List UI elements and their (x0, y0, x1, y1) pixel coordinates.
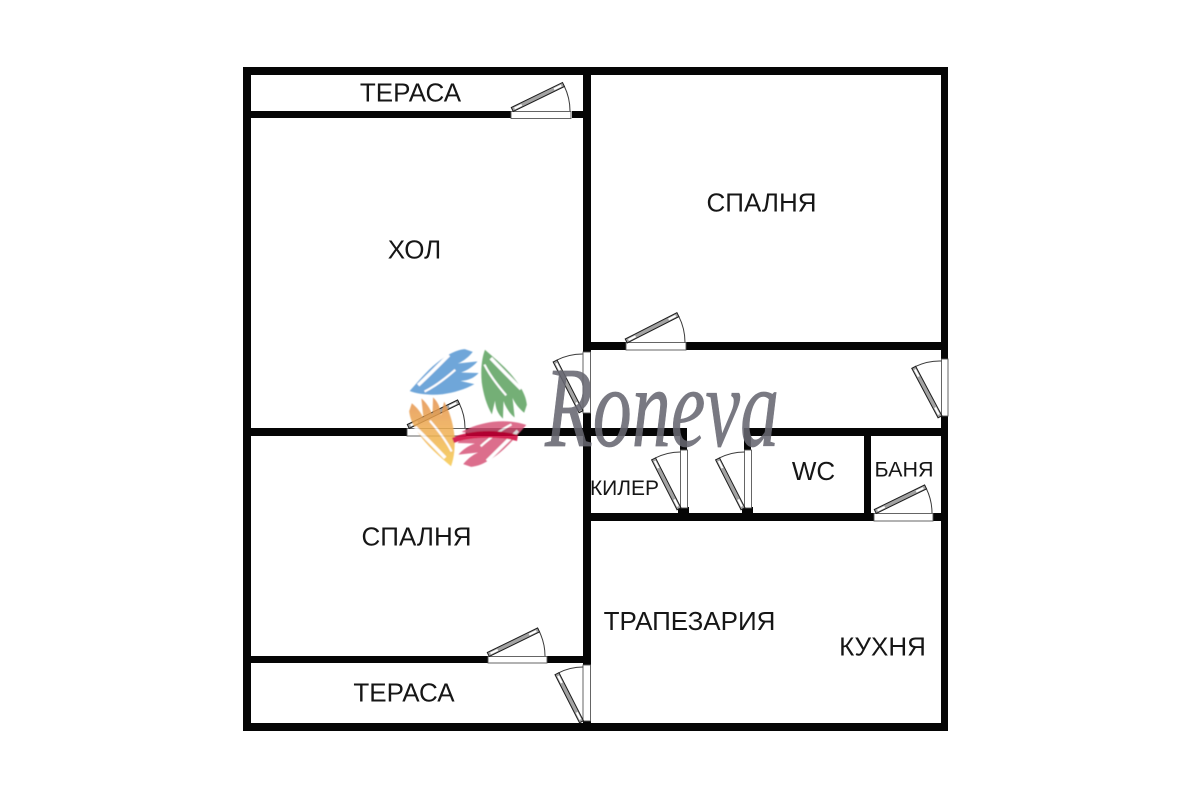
svg-text:Roneva: Roneva (544, 346, 779, 472)
svg-text:БАНЯ: БАНЯ (874, 458, 933, 482)
svg-text:ТРАПЕЗАРИЯ: ТРАПЕЗАРИЯ (604, 606, 776, 636)
svg-text:ТЕРАСА: ТЕРАСА (353, 678, 455, 708)
svg-text:КИЛЕР: КИЛЕР (590, 477, 659, 500)
svg-text:СПАЛНЯ: СПАЛНЯ (707, 188, 817, 218)
svg-text:ТЕРАСА: ТЕРАСА (360, 78, 462, 108)
svg-text:СПАЛНЯ: СПАЛНЯ (362, 522, 472, 552)
svg-text:WC: WC (792, 456, 835, 486)
svg-text:ХОЛ: ХОЛ (388, 235, 441, 265)
svg-text:КУХНЯ: КУХНЯ (839, 632, 926, 662)
